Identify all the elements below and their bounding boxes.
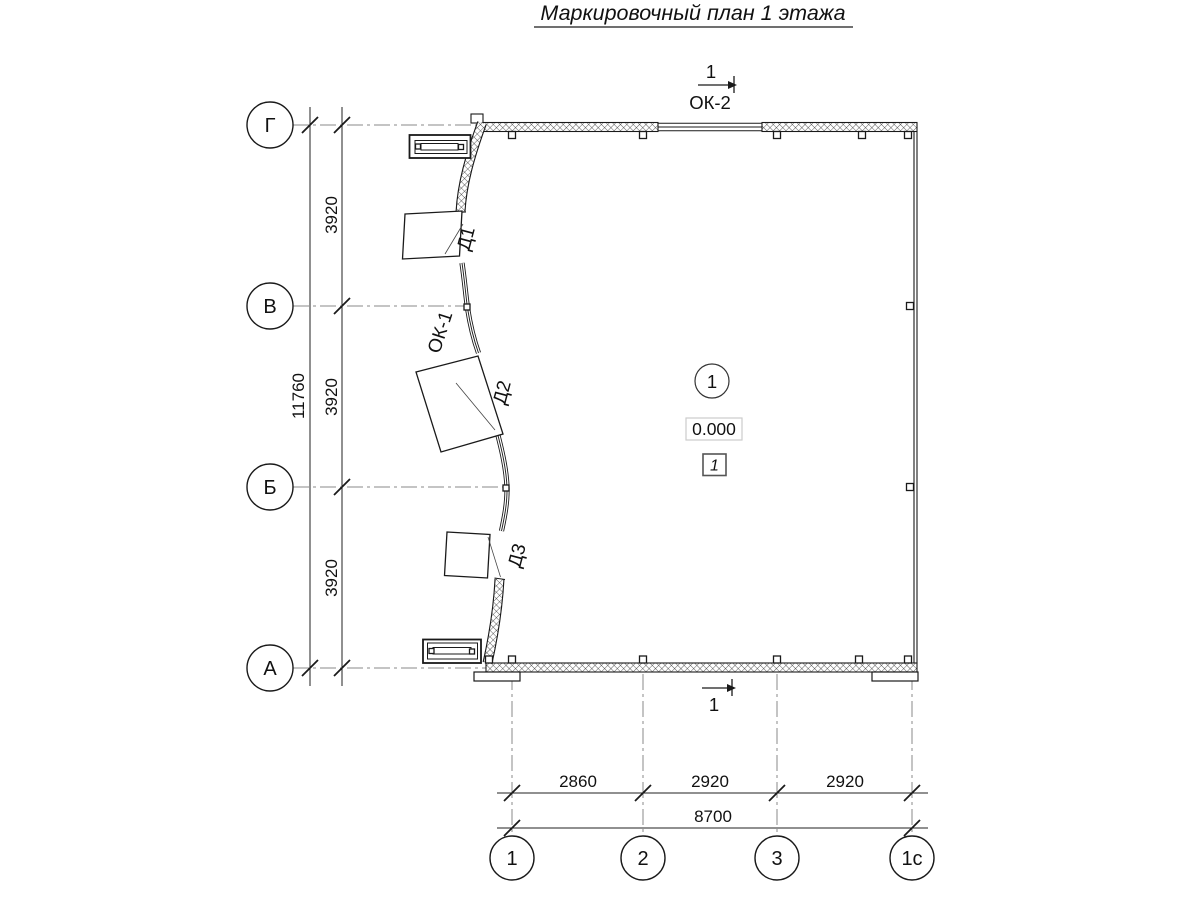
axis-bubble-1c: 1с (901, 848, 922, 870)
dim-col-span-3: 2920 (826, 772, 864, 791)
top-wall-left (482, 123, 658, 132)
top-wall-right (762, 123, 917, 132)
window-top-label: ОК-2 (689, 92, 731, 113)
axis-bubble-b: Б (263, 477, 276, 499)
curved-wall-bottom (488, 578, 506, 663)
dim-row-total: 11760 (289, 373, 308, 419)
axis-bubble-g: Г (265, 115, 276, 137)
axis-bubbles-left: Г В Б А (247, 102, 293, 691)
door3-label: Д3 (505, 542, 531, 570)
bottom-dimensions: 2860 2920 2920 8700 (497, 772, 928, 836)
window-ok2 (658, 123, 762, 130)
section-arrow-top (728, 81, 737, 89)
axis-bubble-3: 3 (771, 848, 782, 870)
dim-row-span-1: 3920 (322, 196, 341, 234)
footing-right (872, 672, 918, 681)
door-d3 (445, 532, 501, 578)
drawing-title: Маркировочный план 1 этажа (534, 1, 853, 27)
section-number-top: 1 (706, 61, 716, 82)
doors (403, 211, 504, 578)
porch-top (410, 135, 471, 158)
dim-col-total: 8700 (694, 807, 732, 826)
axis-lines (293, 125, 912, 835)
room-number: 1 (707, 371, 717, 392)
window-band-middle (496, 426, 508, 531)
section-number-bottom: 1 (709, 694, 719, 715)
right-wall (914, 132, 917, 664)
left-dimensions: 3920 3920 3920 11760 (289, 107, 350, 686)
door1-label: Д1 (454, 225, 480, 253)
axis-bubbles-bottom: 1 2 3 1с (490, 836, 934, 880)
plan-canvas: Маркировочный план 1 этажа 3920 3920 392… (0, 0, 1200, 900)
dim-row-span-2: 3920 (322, 378, 341, 416)
dim-col-span-1: 2860 (559, 772, 597, 791)
porch-bottom (423, 640, 481, 664)
elevation-value: 0.000 (692, 419, 736, 439)
door-d1 (403, 211, 464, 259)
window-ok1-label: ОК-1 (424, 309, 457, 356)
page-title: Маркировочный план 1 этажа (540, 1, 845, 25)
door2-label: Д2 (490, 379, 516, 407)
axis-bubble-2: 2 (637, 848, 648, 870)
dim-row-span-3: 3920 (322, 559, 341, 597)
walls (455, 114, 918, 681)
door-d2 (416, 356, 503, 452)
footing-left (474, 672, 520, 681)
room-marks: 1 0.000 1 (686, 364, 742, 476)
top-left-corner-step (471, 114, 483, 123)
dim-col-span-2: 2920 (691, 772, 729, 791)
axis-bubble-1: 1 (506, 848, 517, 870)
axis-bubble-a: А (263, 658, 277, 680)
wall-markers (464, 132, 914, 664)
floor-plan-drawing: Маркировочный план 1 этажа 3920 3920 392… (0, 0, 1200, 900)
bottom-wall (486, 663, 917, 672)
section-mark-bottom: 1 (702, 679, 736, 715)
floor-mark-value: 1 (710, 458, 719, 475)
section-mark-top: 1 ОК-2 (689, 61, 737, 113)
axis-bubble-v: В (263, 296, 276, 318)
